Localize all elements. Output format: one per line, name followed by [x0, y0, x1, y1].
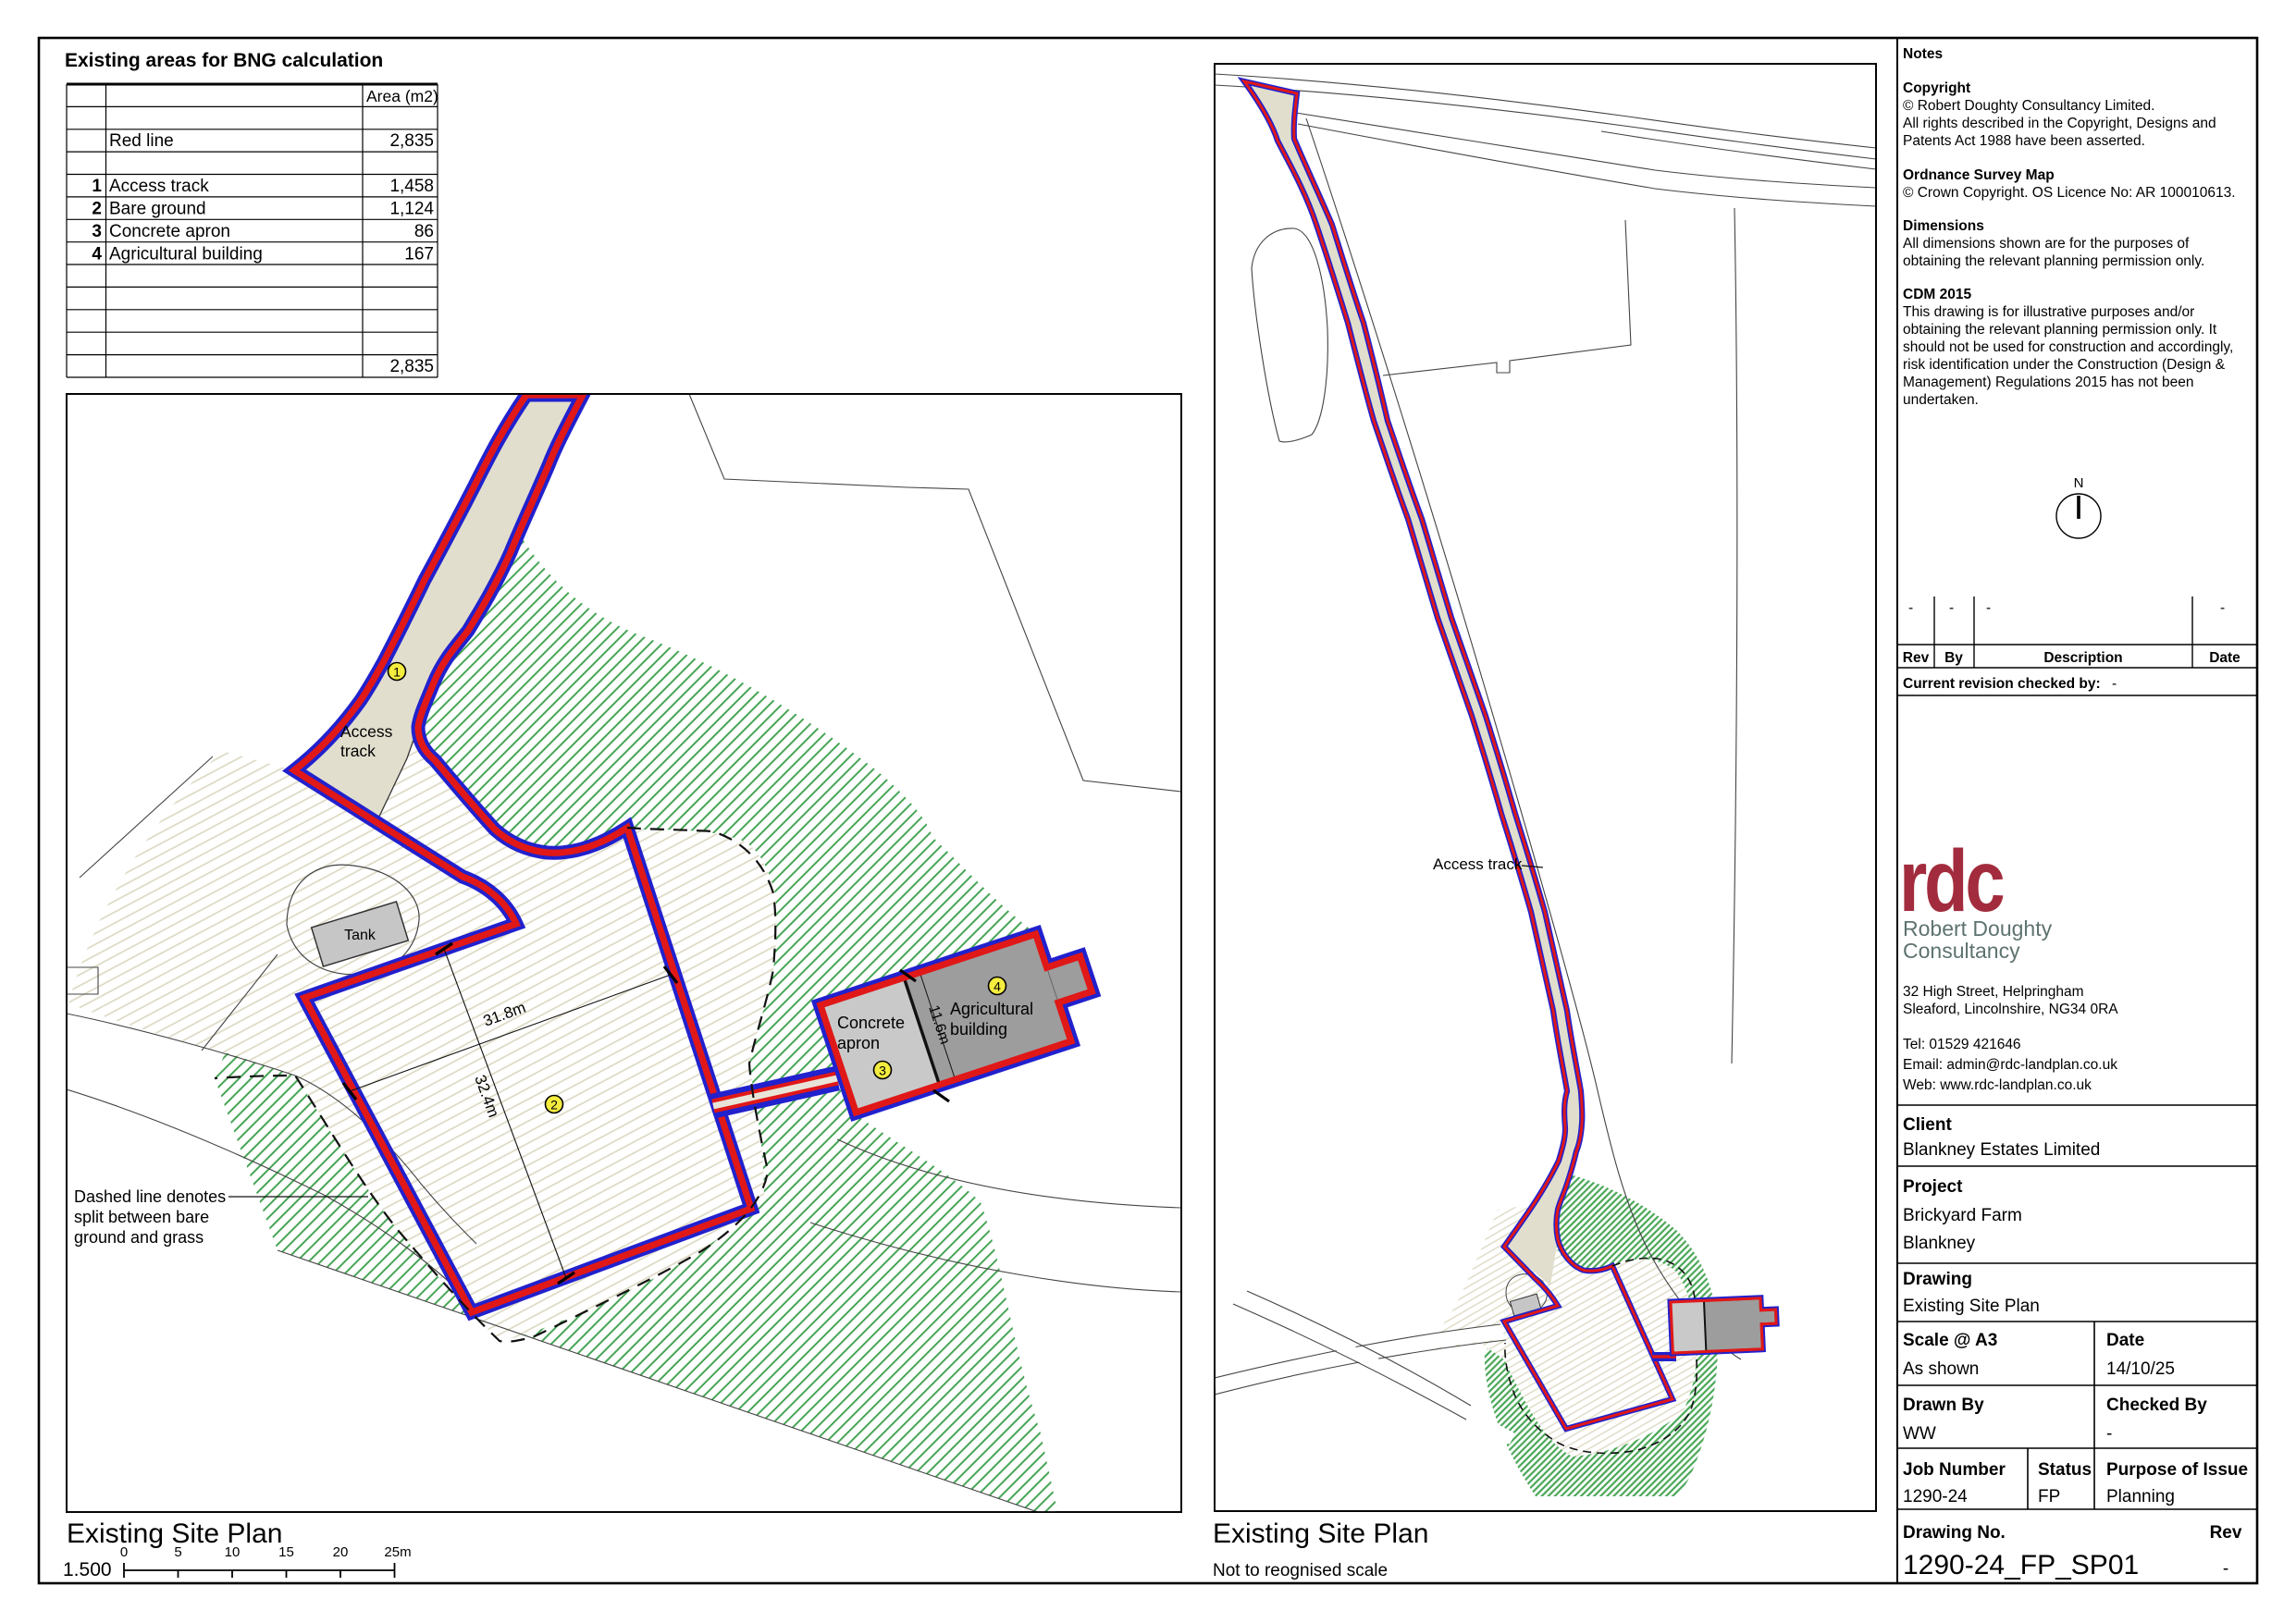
- svg-text:obtaining the relevant plannin: obtaining the relevant planning permissi…: [1903, 253, 2204, 269]
- svg-text:2,835: 2,835: [389, 131, 434, 151]
- svg-text:ground and grass: ground and grass: [74, 1228, 204, 1247]
- svg-text:5: 5: [174, 1544, 181, 1560]
- svg-text:Description: Description: [2043, 650, 2122, 666]
- svg-text:Project: Project: [1903, 1177, 1963, 1197]
- svg-text:Robert Doughty: Robert Doughty: [1903, 916, 2053, 941]
- svg-text:Management) Regulations 2015 h: Management) Regulations 2015 has not bee…: [1903, 375, 2194, 390]
- svg-text:© Robert Doughty Consultancy L: © Robert Doughty Consultancy Limited.: [1903, 98, 2154, 114]
- svg-text:WW: WW: [1903, 1424, 1936, 1444]
- svg-text:Scale @ A3: Scale @ A3: [1903, 1331, 1997, 1350]
- svg-text:-: -: [2106, 1424, 2112, 1444]
- svg-text:Bare ground: Bare ground: [109, 200, 206, 219]
- svg-text:obtaining the relevant plannin: obtaining the relevant planning permissi…: [1903, 322, 2217, 338]
- svg-text:167: 167: [404, 244, 434, 264]
- svg-text:Not to reognised scale: Not to reognised scale: [1213, 1561, 1388, 1580]
- svg-text:track: track: [340, 742, 376, 760]
- svg-text:Consultancy: Consultancy: [1903, 939, 2020, 963]
- svg-text:By: By: [1944, 650, 1963, 666]
- svg-text:Planning: Planning: [2106, 1487, 2175, 1506]
- svg-text:Tel: 01529 421646: Tel: 01529 421646: [1903, 1037, 2021, 1052]
- svg-text:Drawing: Drawing: [1903, 1270, 1972, 1289]
- svg-text:This drawing is for illustrati: This drawing is for illustrative purpose…: [1903, 304, 2194, 320]
- svg-text:86: 86: [414, 222, 434, 241]
- svg-text:Drawn By: Drawn By: [1903, 1396, 1984, 1415]
- svg-text:14/10/25: 14/10/25: [2106, 1359, 2175, 1379]
- svg-text:Brickyard Farm: Brickyard Farm: [1903, 1206, 2022, 1225]
- svg-text:Dimensions: Dimensions: [1903, 218, 1984, 234]
- svg-text:apron: apron: [837, 1034, 880, 1052]
- svg-text:Existing areas for BNG calcula: Existing areas for BNG calculation: [65, 50, 383, 71]
- svg-text:Ordnance Survey Map: Ordnance Survey Map: [1903, 167, 2055, 183]
- svg-text:All rights described in the Co: All rights described in the Copyright, D…: [1903, 116, 2216, 131]
- svg-text:-: -: [1949, 600, 1954, 616]
- svg-text:As shown: As shown: [1903, 1359, 1979, 1379]
- svg-text:2: 2: [550, 1098, 558, 1113]
- svg-text:-: -: [1908, 600, 1913, 616]
- svg-text:should not be used for constru: should not be used for construction and …: [1903, 339, 2233, 355]
- svg-text:FP: FP: [2038, 1487, 2060, 1506]
- svg-text:Dashed line denotes: Dashed line denotes: [74, 1187, 226, 1206]
- svg-text:Access track: Access track: [1433, 855, 1523, 873]
- svg-text:Area (m2): Area (m2): [366, 87, 438, 105]
- svg-text:0: 0: [120, 1544, 128, 1560]
- svg-text:Notes: Notes: [1903, 46, 1943, 62]
- svg-text:All dimensions shown are for t: All dimensions shown are for the purpose…: [1903, 236, 2190, 252]
- svg-text:3: 3: [92, 222, 102, 241]
- svg-text:4: 4: [994, 979, 1001, 994]
- svg-text:Rev: Rev: [2210, 1523, 2242, 1543]
- svg-text:-: -: [1986, 600, 1991, 616]
- svg-text:-: -: [2223, 1559, 2228, 1579]
- svg-text:1,124: 1,124: [389, 200, 434, 219]
- svg-text:3: 3: [879, 1064, 886, 1078]
- svg-text:Access: Access: [340, 722, 393, 741]
- svg-text:Red line: Red line: [109, 131, 174, 151]
- svg-text:Purpose of Issue: Purpose of Issue: [2106, 1460, 2248, 1480]
- svg-text:Web: www.rdc-landplan.co.uk: Web: www.rdc-landplan.co.uk: [1903, 1077, 2092, 1093]
- svg-text:Agricultural building: Agricultural building: [109, 244, 263, 264]
- svg-text:1: 1: [92, 177, 102, 196]
- svg-text:10: 10: [225, 1544, 241, 1560]
- svg-text:split between bare: split between bare: [74, 1208, 209, 1226]
- svg-text:Drawing No.: Drawing No.: [1903, 1523, 2006, 1543]
- svg-text:15: 15: [278, 1544, 294, 1560]
- svg-text:building: building: [950, 1020, 1007, 1039]
- svg-text:Date: Date: [2209, 650, 2240, 666]
- svg-text:20: 20: [333, 1544, 349, 1560]
- svg-text:rdc: rdc: [1899, 832, 2004, 930]
- svg-text:Client: Client: [1903, 1115, 1952, 1135]
- svg-text:1290-24: 1290-24: [1903, 1487, 1968, 1506]
- svg-text:Status: Status: [2038, 1460, 2092, 1480]
- svg-text:Blankney Estates Limited: Blankney Estates Limited: [1903, 1140, 2100, 1160]
- svg-text:CDM 2015: CDM 2015: [1903, 287, 1971, 302]
- svg-text:Checked By: Checked By: [2106, 1396, 2207, 1415]
- svg-text:1.500: 1.500: [63, 1559, 112, 1580]
- svg-text:25m: 25m: [384, 1544, 411, 1560]
- svg-text:undertaken.: undertaken.: [1903, 392, 1979, 408]
- svg-text:Patents Act 1988 have been ass: Patents Act 1988 have been asserted.: [1903, 133, 2145, 149]
- svg-text:2: 2: [92, 200, 102, 219]
- svg-text:Email: admin@rdc-landplan.co.u: Email: admin@rdc-landplan.co.uk: [1903, 1057, 2117, 1073]
- svg-text:N: N: [2074, 475, 2084, 491]
- svg-text:1290-24_FP_SP01: 1290-24_FP_SP01: [1903, 1550, 2139, 1580]
- svg-text:Date: Date: [2106, 1331, 2144, 1350]
- svg-text:Concrete apron: Concrete apron: [109, 222, 230, 241]
- svg-text:1,458: 1,458: [389, 177, 434, 196]
- svg-text:risk identification under the: risk identification under the Constructi…: [1903, 357, 2226, 373]
- svg-text:Current revision checked by:: Current revision checked by:: [1903, 676, 2101, 692]
- svg-text:Tank: Tank: [344, 928, 376, 943]
- svg-text:2,835: 2,835: [389, 357, 434, 376]
- svg-text:Blankney: Blankney: [1903, 1234, 1976, 1253]
- svg-text:1: 1: [393, 665, 401, 680]
- svg-text:Access track: Access track: [109, 177, 209, 196]
- svg-text:Concrete: Concrete: [837, 1014, 905, 1032]
- svg-text:32 High Street, Helpringham: 32 High Street, Helpringham: [1903, 984, 2084, 1000]
- svg-text:Sleaford, Lincolnshire, NG34 0: Sleaford, Lincolnshire, NG34 0RA: [1903, 1002, 2118, 1017]
- svg-text:4: 4: [92, 244, 102, 264]
- svg-text:Agricultural: Agricultural: [950, 1000, 1033, 1018]
- svg-text:Existing Site Plan: Existing Site Plan: [1213, 1518, 1428, 1549]
- svg-text:Copyright: Copyright: [1903, 80, 1970, 96]
- svg-text:Rev: Rev: [1903, 650, 1930, 666]
- svg-text:Existing Site Plan: Existing Site Plan: [1903, 1297, 2040, 1316]
- svg-text:© Crown Copyright. OS Licence: © Crown Copyright. OS Licence No: AR 100…: [1903, 185, 2236, 201]
- svg-text:-: -: [2220, 600, 2225, 616]
- svg-text:-: -: [2112, 676, 2117, 692]
- svg-text:Job Number: Job Number: [1903, 1460, 2006, 1480]
